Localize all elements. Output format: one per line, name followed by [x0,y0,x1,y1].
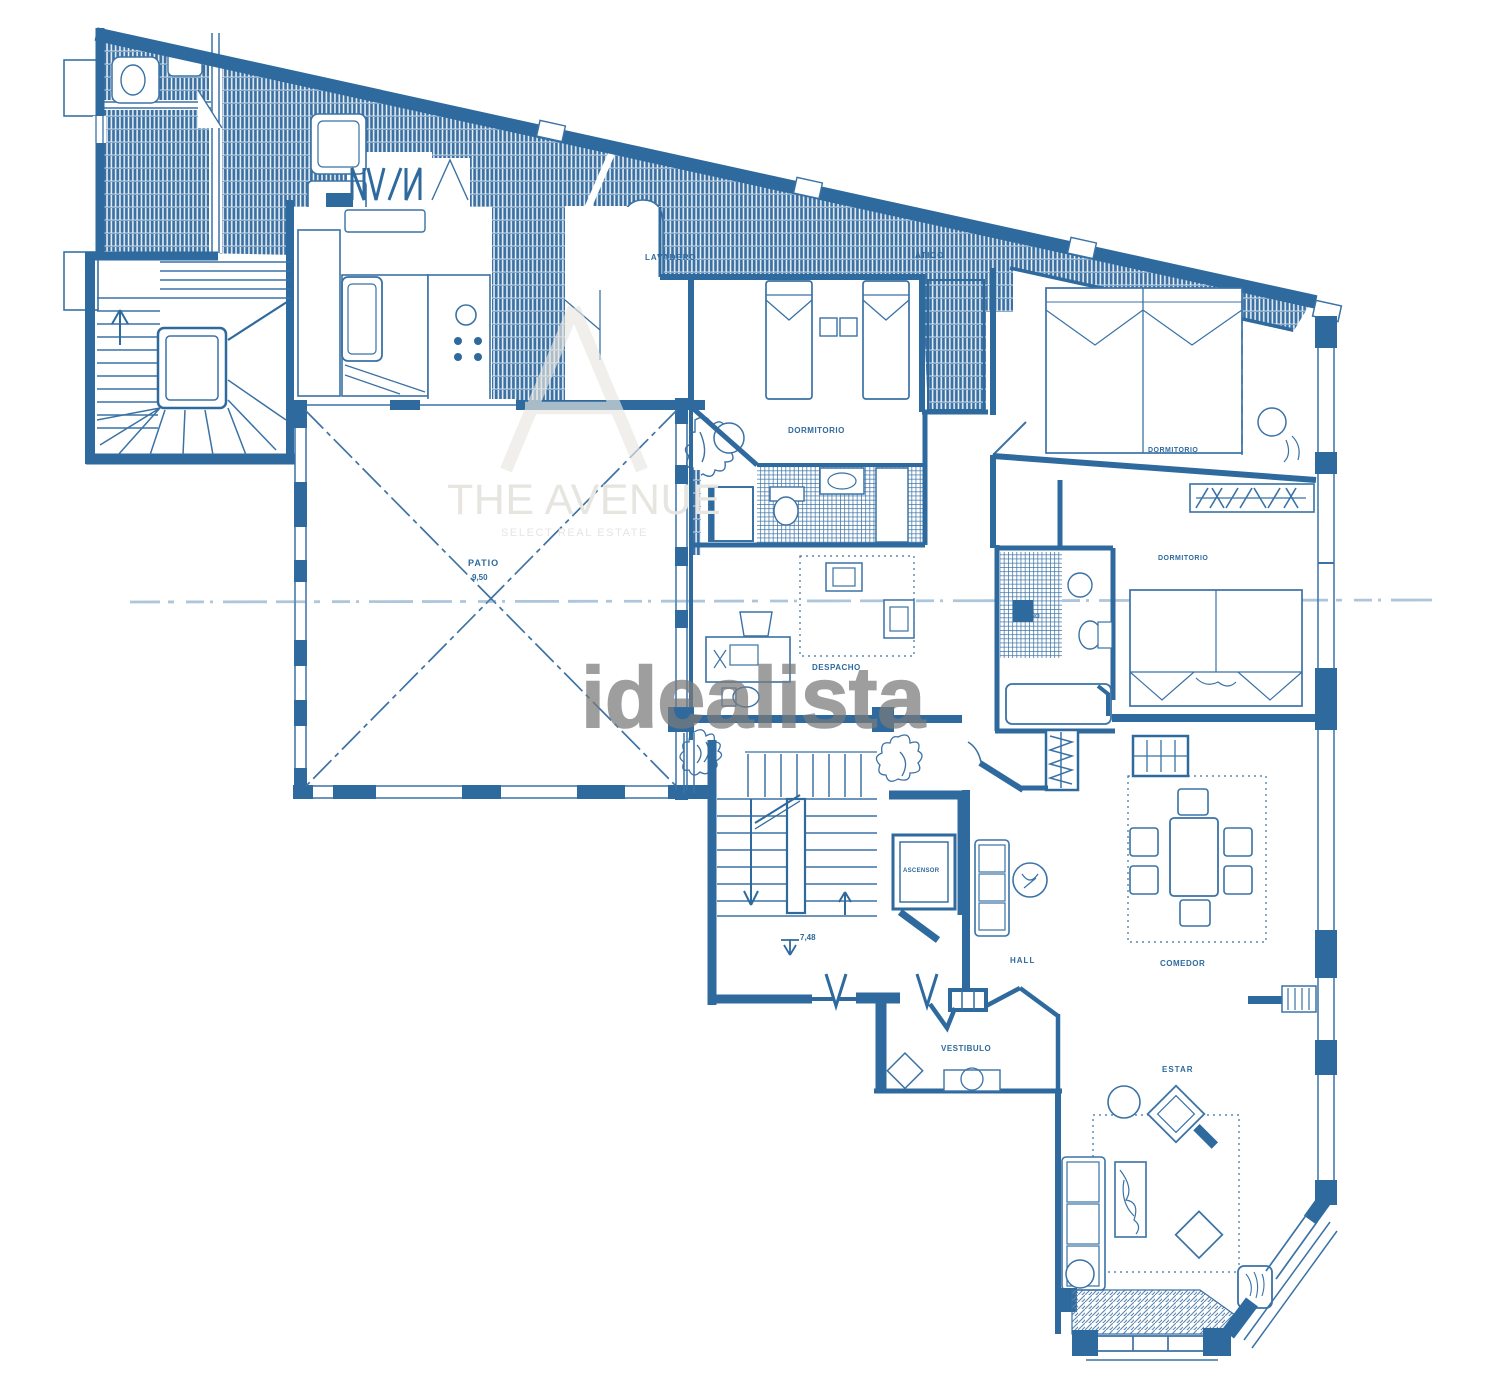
svg-text:PATIO: PATIO [468,558,499,568]
svg-text:SELECT REAL ESTATE: SELECT REAL ESTATE [501,527,648,539]
svg-text:ASCENSOR: ASCENSOR [903,868,940,874]
svg-text:DORMITORIO: DORMITORIO [788,426,845,435]
svg-text:VESTIBULO: VESTIBULO [941,1044,991,1053]
svg-text:ATICO: ATICO [915,251,944,260]
svg-text:THE AVENUE: THE AVENUE [447,476,721,524]
svg-text:9,50: 9,50 [472,573,488,582]
svg-text:HALL: HALL [1010,956,1035,965]
svg-text:COMEDOR: COMEDOR [1160,959,1205,968]
svg-text:7,48: 7,48 [800,933,816,942]
svg-text:ESTAR: ESTAR [1162,1065,1194,1074]
svg-text:BAÑO: BAÑO [1022,613,1040,620]
svg-text:DORMITORIO: DORMITORIO [1158,555,1208,562]
svg-text:DORMITORIO: DORMITORIO [1148,447,1198,454]
svg-text:idealista: idealista [581,650,926,746]
svg-text:LAVADERO: LAVADERO [645,253,697,262]
